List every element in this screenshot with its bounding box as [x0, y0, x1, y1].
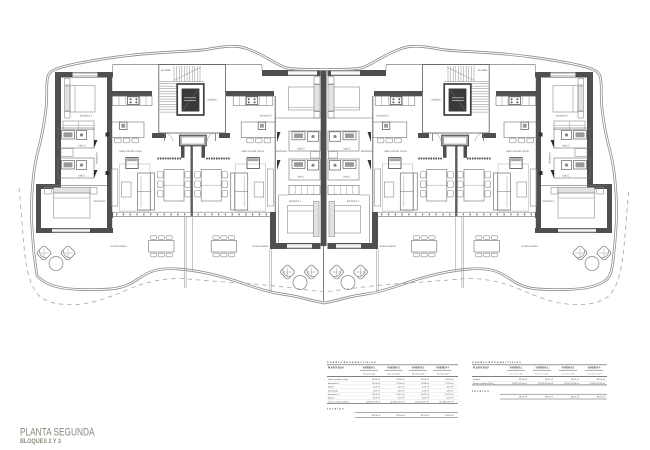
svg-text:útil const total: útil const total [363, 373, 376, 376]
svg-text:baño 2: baño 2 [562, 145, 570, 148]
svg-text:baño 2: baño 2 [78, 145, 86, 148]
svg-text:salón comedor cocina: salón comedor cocina [384, 150, 407, 153]
svg-text:dormitorio 2: dormitorio 2 [80, 115, 93, 118]
svg-text:(11,98) 5,99 m²: (11,98) 5,99 m² [439, 400, 453, 403]
svg-text:baño 1: baño 1 [297, 176, 305, 179]
svg-text:terraza cubierta: terraza cubierta [522, 245, 539, 248]
svg-text:(23,92) 11,96 m²: (23,92) 11,96 m² [538, 382, 554, 385]
svg-text:4,15 m²: 4,15 m² [422, 386, 429, 389]
svg-text:salón comedor cocina: salón comedor cocina [241, 150, 264, 153]
svg-text:baño 1: baño 1 [343, 176, 351, 179]
svg-text:dormitorio 2: dormitorio 2 [556, 115, 569, 118]
svg-text:baño 2: baño 2 [297, 148, 305, 151]
svg-text:86,50 m²: 86,50 m² [519, 378, 528, 381]
svg-text:distribuidor: distribuidor [96, 152, 99, 163]
svg-text:distribuidor: distribuidor [549, 152, 552, 163]
svg-text:salón comedor cocina: salón comedor cocina [119, 150, 142, 153]
svg-text:vividero: vividero [473, 378, 481, 381]
svg-text:baño 1: baño 1 [328, 386, 335, 389]
svg-text:24,06 m²: 24,06 m² [372, 378, 381, 381]
svg-text:baño 2: baño 2 [343, 148, 351, 151]
svg-text:salón comedor cocina: salón comedor cocina [328, 378, 349, 381]
svg-text:63,50 m²: 63,50 m² [396, 414, 405, 417]
svg-text:(23,92) 11,96 m²: (23,92) 11,96 m² [512, 382, 528, 385]
svg-text:c o n s t r u i d a: c o n s t r u i d a [535, 373, 549, 376]
svg-text:12,88 m²: 12,88 m² [421, 382, 430, 385]
svg-text:sin salida: sin salida [161, 70, 171, 72]
svg-text:98,27 m²: 98,27 m² [545, 395, 554, 398]
svg-text:12,94 m²: 12,94 m² [445, 382, 454, 385]
svg-text:distribuidor: distribuidor [328, 389, 338, 392]
svg-text:PLANTA BAJA: PLANTA BAJA [473, 367, 489, 370]
svg-text:63,50 m²: 63,50 m² [372, 414, 381, 417]
svg-text:VIVIENDA 4: VIVIENDA 4 [436, 367, 449, 370]
svg-text:distribuidor: distribuidor [361, 150, 372, 153]
svg-text:1,85 m²: 1,85 m² [397, 389, 404, 392]
svg-text:vestíbulo: vestíbulo [431, 99, 441, 102]
svg-text:t o t a l e s: t o t a l e s [327, 407, 344, 411]
svg-text:útil const total: útil const total [387, 373, 400, 376]
svg-text:vestíbulo: vestíbulo [207, 99, 217, 102]
svg-text:BLOQUES 2 Y 3: BLOQUES 2 Y 3 [20, 438, 61, 445]
svg-text:86,50 m²: 86,50 m² [597, 378, 606, 381]
svg-text:sin salida: sin salida [478, 70, 488, 72]
svg-text:12,94 m²: 12,94 m² [372, 382, 381, 385]
svg-text:98,27 m²: 98,27 m² [519, 395, 528, 398]
svg-text:(11,98) 5,99 m²: (11,98) 5,99 m² [366, 400, 380, 403]
svg-text:terraza cubierta (50%): terraza cubierta (50%) [473, 382, 494, 385]
svg-text:VIVIENDA 3: VIVIENDA 3 [562, 367, 575, 370]
svg-text:10,47 m²: 10,47 m² [421, 393, 430, 396]
svg-text:(23,92) 11,96 m²: (23,92) 11,96 m² [564, 382, 580, 385]
svg-text:10,54 m²: 10,54 m² [445, 393, 454, 396]
svg-text:t o t a l e s: t o t a l e s [472, 389, 489, 393]
svg-text:PLANTA SEGUNDA: PLANTA SEGUNDA [20, 427, 95, 439]
svg-text:4,02 m²: 4,02 m² [446, 397, 453, 400]
svg-text:(23,92) 11,96 m²: (23,92) 11,96 m² [590, 382, 606, 385]
svg-text:PLANTA BAJA: PLANTA BAJA [328, 367, 344, 370]
svg-text:baño 1: baño 1 [562, 175, 570, 178]
svg-text:10,47 m²: 10,47 m² [396, 393, 405, 396]
svg-text:terraza cubierta: terraza cubierta [111, 245, 128, 248]
svg-text:78,01 m²: 78,01 m² [571, 378, 580, 381]
svg-text:salón comedor cocina: salón comedor cocina [506, 150, 529, 153]
svg-text:10,54 m²: 10,54 m² [372, 393, 381, 396]
svg-text:dormitorio 1: dormitorio 1 [289, 200, 302, 203]
svg-text:12,88 m²: 12,88 m² [396, 382, 405, 385]
svg-text:4,02 m²: 4,02 m² [373, 397, 380, 400]
svg-text:24,06 m²: 24,06 m² [396, 378, 405, 381]
svg-text:1,82 m²: 1,82 m² [446, 389, 453, 392]
svg-text:c o n s t r u i d a: c o n s t r u i d a [509, 373, 523, 376]
svg-text:24,06 m²: 24,06 m² [445, 378, 454, 381]
svg-text:VIVIENDA 4: VIVIENDA 4 [588, 367, 601, 370]
svg-text:63,50 m²: 63,50 m² [421, 414, 430, 417]
svg-text:4,13 m²: 4,13 m² [373, 386, 380, 389]
svg-text:útil const total: útil const total [412, 373, 425, 376]
svg-text:(11,94) 5,97 m²: (11,94) 5,97 m² [415, 400, 429, 403]
svg-text:c o n s t r u i d a: c o n s t r u i d a [587, 373, 601, 376]
svg-text:dormitorio 1: dormitorio 1 [328, 382, 340, 385]
svg-text:1,85 m²: 1,85 m² [422, 389, 429, 392]
svg-text:terraza cubierta: terraza cubierta [253, 245, 270, 248]
svg-text:VIVIENDA 1: VIVIENDA 1 [363, 367, 376, 370]
svg-text:dormitorio 1: dormitorio 1 [93, 200, 106, 203]
svg-text:baño 1: baño 1 [78, 175, 86, 178]
svg-text:c u a d r o d e s u p e r: c u a d r o d e s u p e r f i c i e s [472, 360, 521, 364]
svg-text:dormitorio 2: dormitorio 2 [376, 114, 389, 117]
svg-text:distribuidor: distribuidor [276, 150, 287, 153]
svg-text:4,13 m²: 4,13 m² [446, 386, 453, 389]
svg-text:(11,94) 5,97 m²: (11,94) 5,97 m² [390, 400, 404, 403]
svg-text:98,27 m²: 98,27 m² [571, 395, 580, 398]
svg-text:4,04 m²: 4,04 m² [422, 397, 429, 400]
svg-text:dormitorio 1: dormitorio 1 [542, 200, 555, 203]
svg-text:1,82 m²: 1,82 m² [373, 389, 380, 392]
svg-text:VIVIENDA 2: VIVIENDA 2 [387, 367, 400, 370]
svg-text:baño 2: baño 2 [328, 397, 335, 400]
svg-text:63,50 m²: 63,50 m² [445, 414, 454, 417]
svg-text:dormitorio 2: dormitorio 2 [328, 393, 340, 396]
svg-text:24,06 m²: 24,06 m² [421, 378, 430, 381]
svg-text:4,04 m²: 4,04 m² [397, 397, 404, 400]
svg-text:VIVIENDA 1: VIVIENDA 1 [510, 367, 523, 370]
svg-text:78,01 m²: 78,01 m² [545, 378, 554, 381]
svg-text:dormitorio 1: dormitorio 1 [347, 200, 360, 203]
svg-text:dormitorio 2: dormitorio 2 [259, 114, 272, 117]
svg-text:VIVIENDA 3: VIVIENDA 3 [412, 367, 425, 370]
svg-text:útil const total: útil const total [436, 373, 449, 376]
svg-text:c u a d r o d e s u p e r: c u a d r o d e s u p e r f i c i e s [327, 360, 376, 364]
svg-text:VIVIENDA 2: VIVIENDA 2 [536, 367, 549, 370]
svg-text:c o n s t r u i d a: c o n s t r u i d a [561, 373, 575, 376]
svg-text:terraza cubierta (50%): terraza cubierta (50%) [328, 400, 349, 403]
svg-text:98,27 m²: 98,27 m² [597, 395, 606, 398]
svg-text:terraza cubierta: terraza cubierta [380, 245, 397, 248]
svg-text:4,15 m²: 4,15 m² [397, 386, 404, 389]
